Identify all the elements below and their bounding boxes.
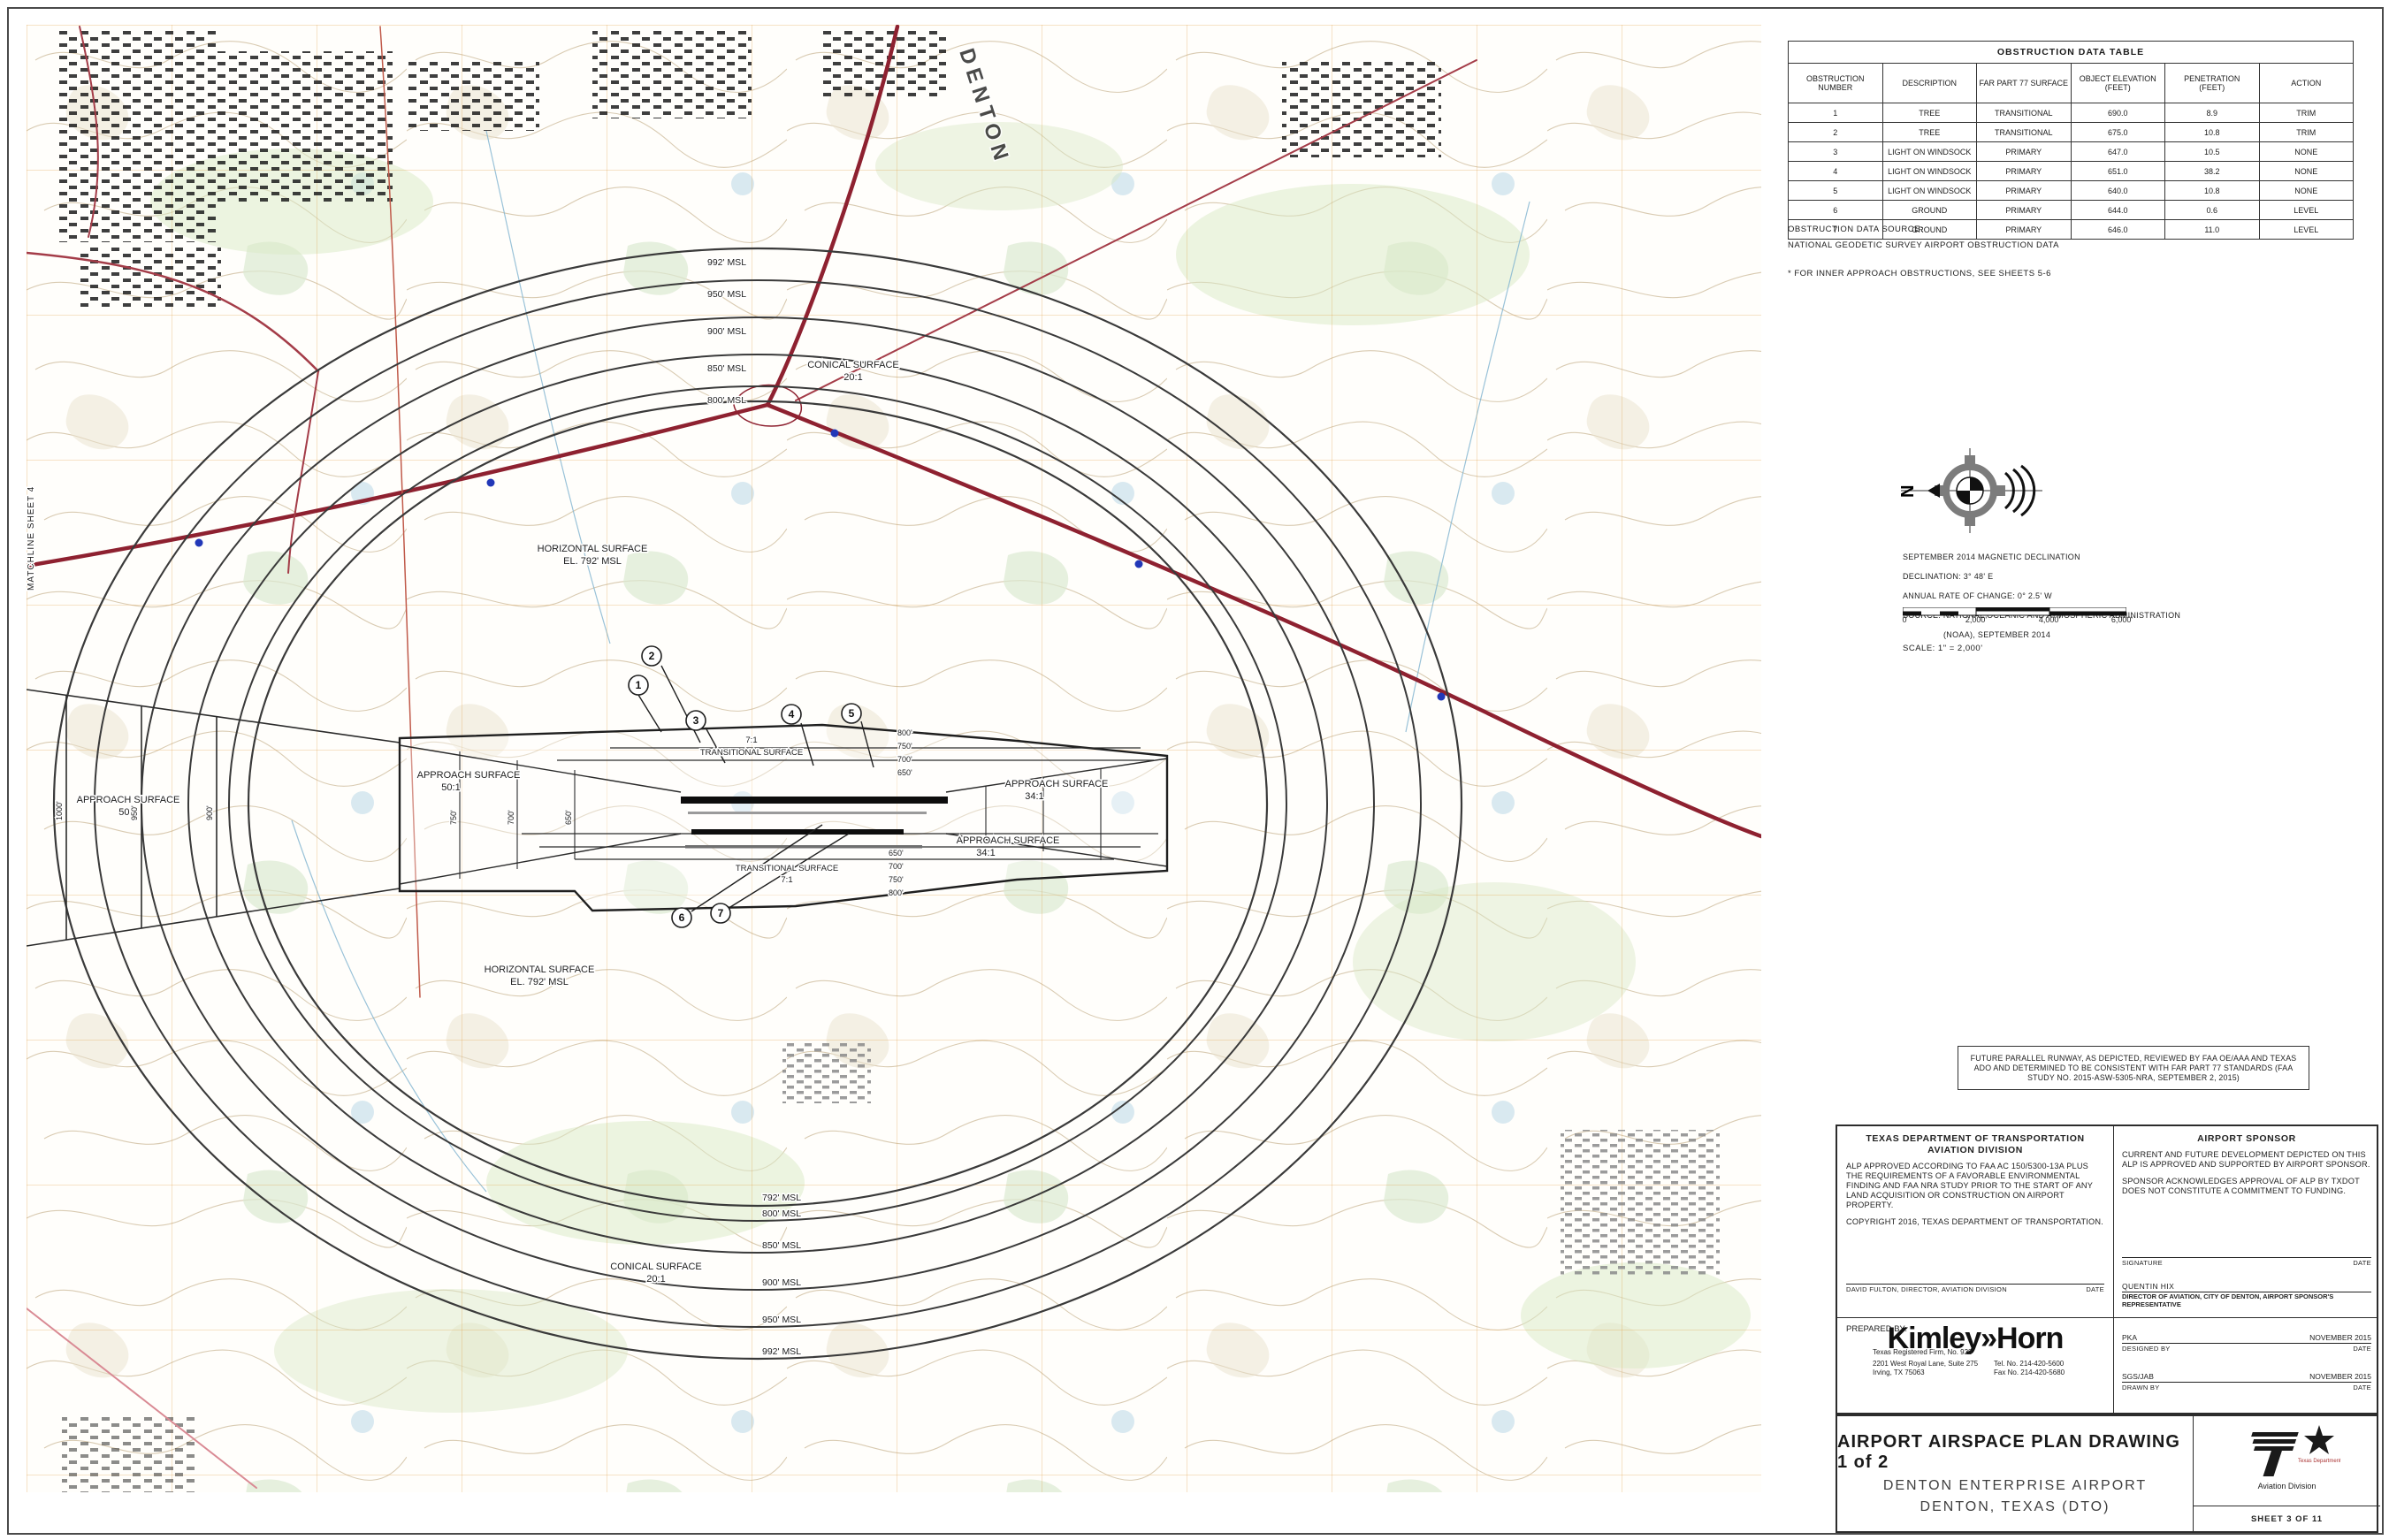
svg-text:650': 650': [897, 768, 912, 777]
svg-text:750': 750': [449, 810, 458, 825]
svg-text:750': 750': [889, 875, 904, 884]
marker-6: 6: [679, 911, 685, 924]
conical-surface-label-1a: CONICAL SURFACE: [807, 360, 899, 370]
svg-text:792' MSL: 792' MSL: [762, 1193, 801, 1203]
designed-date: NOVEMBER 2015: [2309, 1333, 2371, 1343]
svg-text:1000': 1000': [55, 801, 64, 820]
svg-text:800': 800': [897, 728, 912, 737]
obstruction-data-table: OBSTRUCTION DATA TABLE OBSTRUCTION NUMBE…: [1788, 41, 2354, 240]
approach50-inner-label-a: APPROACH SURFACE: [417, 770, 521, 781]
firm-fax: Fax No. 214-420-5680: [1994, 1368, 2065, 1377]
svg-text:650': 650': [564, 810, 573, 825]
txdot-logo-text: Texas Department of Transportation: [2298, 1459, 2340, 1464]
col-description: DESCRIPTION: [1882, 64, 1977, 103]
approach34-north-label-a: APPROACH SURFACE: [1005, 779, 1109, 789]
table-row: 2TREE TRANSITIONAL675.0 10.8TRIM: [1789, 123, 2354, 142]
txdot-signer: DAVID FULTON, DIRECTOR, AVIATION DIVISIO…: [1846, 1285, 2007, 1293]
svg-text:900' MSL: 900' MSL: [707, 326, 746, 337]
designed-value: PKA: [2122, 1333, 2137, 1343]
approach34-south-label-b: 34:1: [976, 848, 995, 858]
marker-7: 7: [718, 907, 724, 919]
future-runway-note: FUTURE PARALLEL RUNWAY, AS DEPICTED, REV…: [1958, 1046, 2309, 1090]
svg-text:992' MSL: 992' MSL: [707, 257, 746, 268]
horizontal-surface-label-2b: EL. 792' MSL: [510, 977, 569, 987]
table-row: 5LIGHT ON WINDSOCK PRIMARY640.0 10.8NONE: [1789, 181, 2354, 201]
sponsor-title: AIRPORT SPONSOR: [2122, 1133, 2371, 1145]
scale-label: SCALE: 1" = 2,000': [1903, 644, 1983, 653]
sponsor-paragraph-1: CURRENT AND FUTURE DEVELOPMENT DEPICTED …: [2122, 1150, 2371, 1170]
svg-text:900' MSL: 900' MSL: [762, 1277, 801, 1288]
matchline-label: MATCHLINE SHEET 4: [27, 486, 36, 591]
approval-blocks: TEXAS DEPARTMENT OF TRANSPORTATION AVIAT…: [1836, 1125, 2378, 1414]
table-header-row: OBSTRUCTION NUMBER DESCRIPTION FAR PART …: [1789, 64, 2354, 103]
svg-text:950': 950': [130, 805, 139, 820]
drawn-date: NOVEMBER 2015: [2309, 1372, 2371, 1382]
svg-text:950' MSL: 950' MSL: [707, 289, 746, 300]
sponsor-signature-row: SIGNATURE DATE: [2122, 1257, 2371, 1267]
txdot-date-label: DATE: [2086, 1285, 2104, 1293]
txdot-title: TEXAS DEPARTMENT OF TRANSPORTATION AVIAT…: [1846, 1133, 2104, 1156]
obstruction-source-label: OBSTRUCTION DATA SOURCE:: [1788, 225, 1923, 234]
approach34-north-label-b: 34:1: [1025, 791, 1043, 802]
approach34-south-label-a: APPROACH SURFACE: [957, 835, 1060, 846]
agency-logo-cell: Texas Department of Transportation Aviat…: [2193, 1416, 2380, 1531]
drawn-row: SGS/JAB NOVEMBER 2015 DRAWN BY DATE: [2122, 1372, 2371, 1391]
sponsor-name: QUENTIN HIX: [2122, 1282, 2371, 1292]
kimley-horn-logo: Kimley»Horn: [1846, 1334, 2104, 1344]
horizontal-surface-label-1b: EL. 792' MSL: [563, 556, 622, 567]
marker-4: 4: [789, 708, 795, 720]
firm-address-1: 2201 West Royal Lane, Suite 275: [1873, 1360, 1978, 1368]
txdot-paragraph-2: COPYRIGHT 2016, TEXAS DEPARTMENT OF TRAN…: [1846, 1217, 2104, 1227]
plan-sheet: 1 2 3 4 5 6 7 DENTON MATCHLINE SHEET 4 H…: [0, 0, 2389, 1540]
airport-name: DENTON ENTERPRISE AIRPORT: [1883, 1478, 2147, 1494]
table-title: OBSTRUCTION DATA TABLE: [1789, 42, 2354, 64]
approach50-outer-label-a: APPROACH SURFACE: [77, 795, 180, 805]
sponsor-approval-block: AIRPORT SPONSOR CURRENT AND FUTURE DEVEL…: [2113, 1126, 2380, 1317]
runway-bar-future-parallel: [685, 845, 922, 849]
table-row: 1TREE TRANSITIONAL690.0 8.9TRIM: [1789, 103, 2354, 123]
svg-text:700': 700': [889, 862, 904, 871]
firm-address-2: Irving, TX 75063: [1873, 1368, 1978, 1377]
svg-text:700': 700': [897, 755, 912, 764]
svg-text:992' MSL: 992' MSL: [762, 1346, 801, 1357]
svg-text:850' MSL: 850' MSL: [762, 1240, 801, 1251]
svg-text:800' MSL: 800' MSL: [762, 1208, 801, 1219]
table-row: 6GROUND PRIMARY644.0 0.6LEVEL: [1789, 201, 2354, 220]
conical-surface-label-2a: CONICAL SURFACE: [610, 1262, 702, 1272]
north-arrow-icon: N: [1901, 446, 2042, 535]
drawn-label: DRAWN BY: [2122, 1384, 2160, 1391]
scale-tick-0: 0: [1902, 615, 1906, 624]
table-row: 4LIGHT ON WINDSOCK PRIMARY651.0 38.2NONE: [1789, 162, 2354, 181]
svg-text:950' MSL: 950' MSL: [762, 1315, 801, 1325]
table-row: 3LIGHT ON WINDSOCK PRIMARY647.0 10.5NONE: [1789, 142, 2354, 162]
scale-tick-2: 4,000': [2039, 615, 2060, 624]
drawing-title: AIRPORT AIRSPACE PLAN DRAWING 1 of 2: [1837, 1432, 2193, 1473]
col-action: ACTION: [2259, 64, 2354, 103]
svg-text:900': 900': [205, 805, 214, 820]
svg-text:650': 650': [889, 849, 904, 858]
approach50-inner-label-b: 50:1: [441, 782, 460, 793]
col-elevation: OBJECT ELEVATION (FEET): [2071, 64, 2165, 103]
airspace-map: 1 2 3 4 5 6 7 DENTON MATCHLINE SHEET 4 H…: [27, 25, 1761, 1492]
transitional-south-label-a: TRANSITIONAL SURFACE: [736, 864, 838, 873]
txdot-logo-icon: Texas Department of Transportation: [2234, 1423, 2340, 1480]
marker-1: 1: [636, 679, 642, 691]
taxiway-bar: [688, 812, 927, 814]
designed-date-label: DATE: [2353, 1345, 2371, 1353]
horizontal-surface-label-2a: HORIZONTAL SURFACE: [485, 964, 595, 975]
designed-label: DESIGNED BY: [2122, 1345, 2171, 1353]
title-block: AIRPORT AIRSPACE PLAN DRAWING 1 of 2 DEN…: [1836, 1414, 2378, 1533]
scale-tick-3: 6,000': [2111, 615, 2133, 624]
sponsor-paragraph-2: SPONSOR ACKNOWLEDGES APPROVAL OF ALP BY …: [2122, 1177, 2371, 1196]
conical-surface-label-1b: 20:1: [843, 372, 862, 383]
svg-text:800': 800': [889, 888, 904, 897]
txdot-paragraph-1: ALP APPROVED ACCORDING TO FAA AC 150/530…: [1846, 1162, 2104, 1210]
marker-2: 2: [649, 650, 655, 662]
drawn-value: SGS/JAB: [2122, 1372, 2154, 1382]
svg-text:700': 700': [507, 810, 515, 825]
col-surface: FAR PART 77 SURFACE: [1977, 64, 2072, 103]
sponsor-signature-label: SIGNATURE: [2122, 1259, 2163, 1267]
sponsor-date-label: DATE: [2353, 1259, 2371, 1267]
runway-bar-existing: [681, 797, 948, 804]
obstruction-source-value: NATIONAL GEODETIC SURVEY AIRPORT OBSTRUC…: [1788, 240, 2059, 250]
col-number: OBSTRUCTION NUMBER: [1789, 64, 1883, 103]
svg-text:800' MSL: 800' MSL: [707, 395, 746, 406]
sheet-number: SHEET 3 OF 11: [2194, 1506, 2380, 1531]
transitional-north-label-b: 7:1: [745, 736, 757, 745]
signoff-block: PKA NOVEMBER 2015 DESIGNED BY DATE SGS/J…: [2113, 1317, 2380, 1414]
scale-bar: 0 2,000' 4,000' 6,000': [1903, 605, 2126, 635]
transitional-north-label-a: TRANSITIONAL SURFACE: [700, 748, 803, 758]
runway-bar-secondary: [691, 829, 904, 835]
obstruction-footnote: * FOR INNER APPROACH OBSTRUCTIONS, SEE S…: [1788, 269, 2051, 278]
prepared-by-block: PREPARED BY: Kimley»Horn Texas Registere…: [1837, 1317, 2113, 1414]
txdot-signature-row: DAVID FULTON, DIRECTOR, AVIATION DIVISIO…: [1846, 1284, 2104, 1293]
marker-5: 5: [849, 707, 855, 720]
firm-phone: Tel. No. 214-420-5600: [1994, 1360, 2065, 1368]
drawn-date-label: DATE: [2353, 1384, 2371, 1391]
scale-tick-1: 2,000': [1965, 615, 1987, 624]
north-letter: N: [1901, 485, 1918, 498]
horizontal-surface-label-1a: HORIZONTAL SURFACE: [538, 544, 648, 554]
conical-surface-label-2b: 20:1: [646, 1274, 665, 1285]
col-penetration: PENETRATION (FEET): [2165, 64, 2260, 103]
svg-text:750': 750': [897, 742, 912, 751]
designed-row: PKA NOVEMBER 2015 DESIGNED BY DATE: [2122, 1333, 2371, 1353]
sponsor-name-title: DIRECTOR OF AVIATION, CITY OF DENTON, AI…: [2122, 1292, 2371, 1308]
division-label: Aviation Division: [2194, 1482, 2380, 1490]
txdot-approval-block: TEXAS DEPARTMENT OF TRANSPORTATION AVIAT…: [1837, 1126, 2113, 1317]
marker-3: 3: [693, 714, 699, 727]
svg-text:850' MSL: 850' MSL: [707, 363, 746, 374]
airport-location: DENTON, TEXAS (DTO): [1920, 1499, 2110, 1515]
transitional-south-label-b: 7:1: [781, 875, 792, 885]
sponsor-name-row: QUENTIN HIX DIRECTOR OF AVIATION, CITY O…: [2122, 1282, 2371, 1308]
